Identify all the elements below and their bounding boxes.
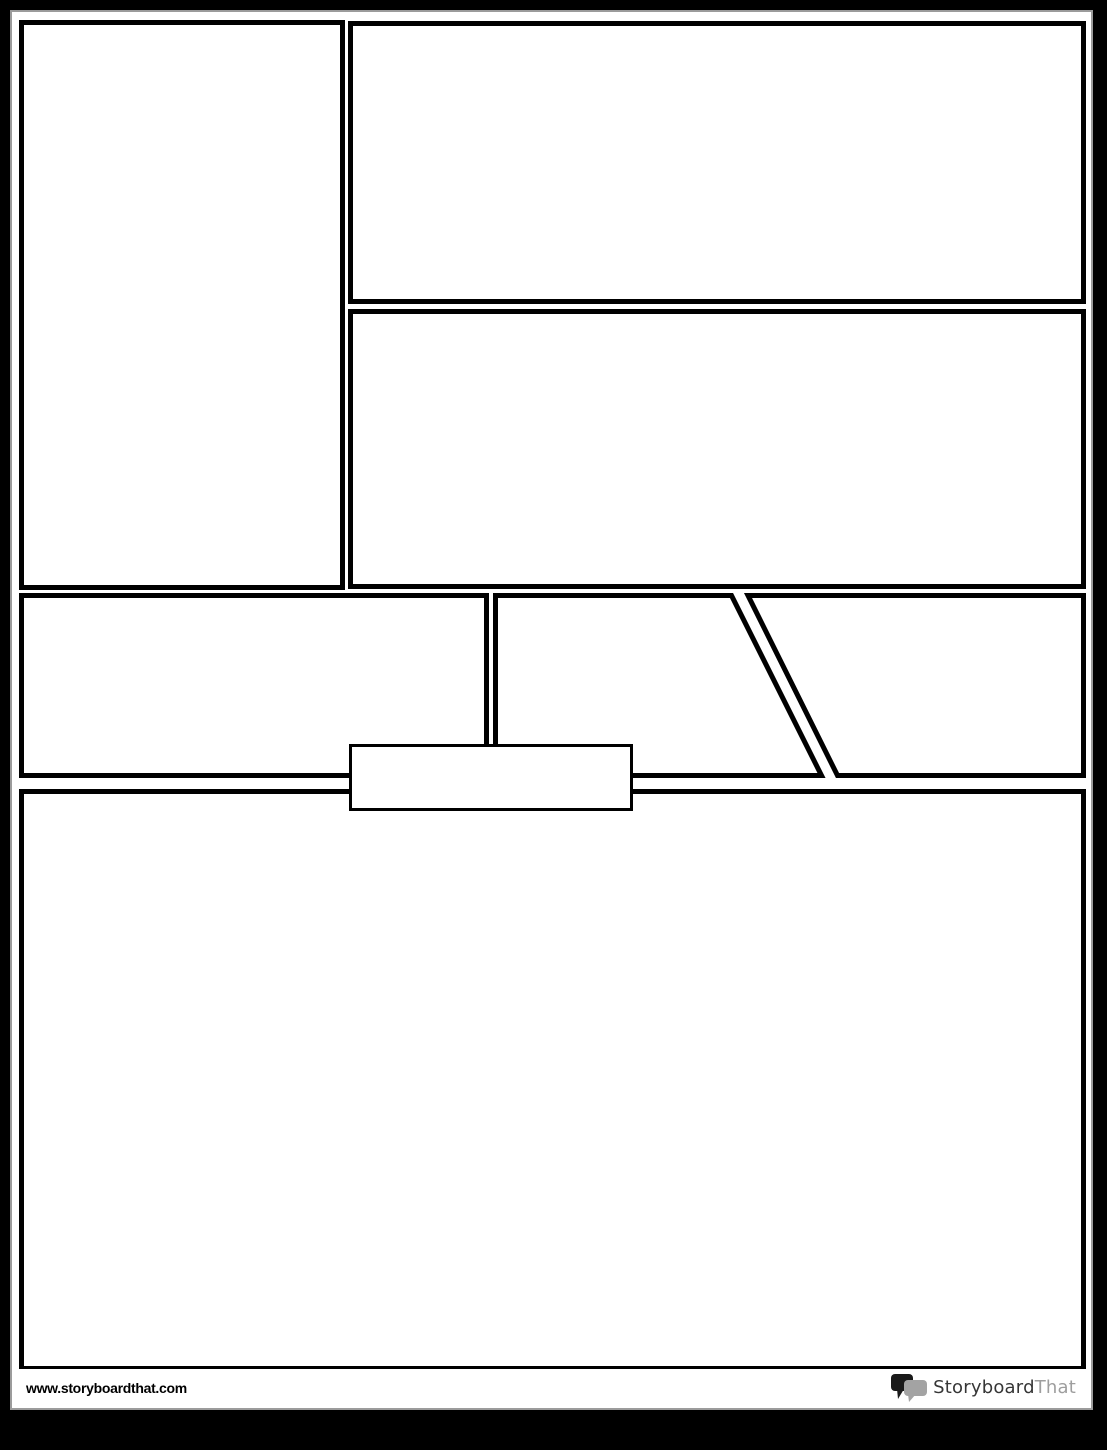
speech-bubbles-icon bbox=[891, 1374, 928, 1402]
logo-text-storyboard: Storyboard bbox=[933, 1377, 1035, 1398]
page-footer: www.storyboardthat.com StoryboardThat bbox=[12, 1369, 1091, 1408]
caption-box[interactable] bbox=[349, 744, 633, 811]
worksheet-canvas: www.storyboardthat.com StoryboardThat bbox=[0, 0, 1107, 1450]
website-url: www.storyboardthat.com bbox=[26, 1380, 187, 1396]
logo-text-that: That bbox=[1035, 1377, 1076, 1398]
storyboardthat-logo: StoryboardThat bbox=[891, 1374, 1076, 1402]
logo-text: StoryboardThat bbox=[933, 1377, 1076, 1398]
comic-page: www.storyboardthat.com StoryboardThat bbox=[10, 10, 1093, 1410]
comic-page-content: www.storyboardthat.com StoryboardThat bbox=[12, 12, 1091, 1408]
comic-panel-bottom[interactable] bbox=[19, 789, 1086, 1371]
comic-panel-tall-left[interactable] bbox=[19, 20, 345, 590]
comic-panel-top-right[interactable] bbox=[348, 21, 1086, 304]
comic-panel-middle-right[interactable] bbox=[348, 309, 1086, 589]
comic-panel-row3-right-shape[interactable] bbox=[748, 596, 1084, 776]
comic-panel-row3-right-slanted bbox=[744, 593, 1086, 778]
